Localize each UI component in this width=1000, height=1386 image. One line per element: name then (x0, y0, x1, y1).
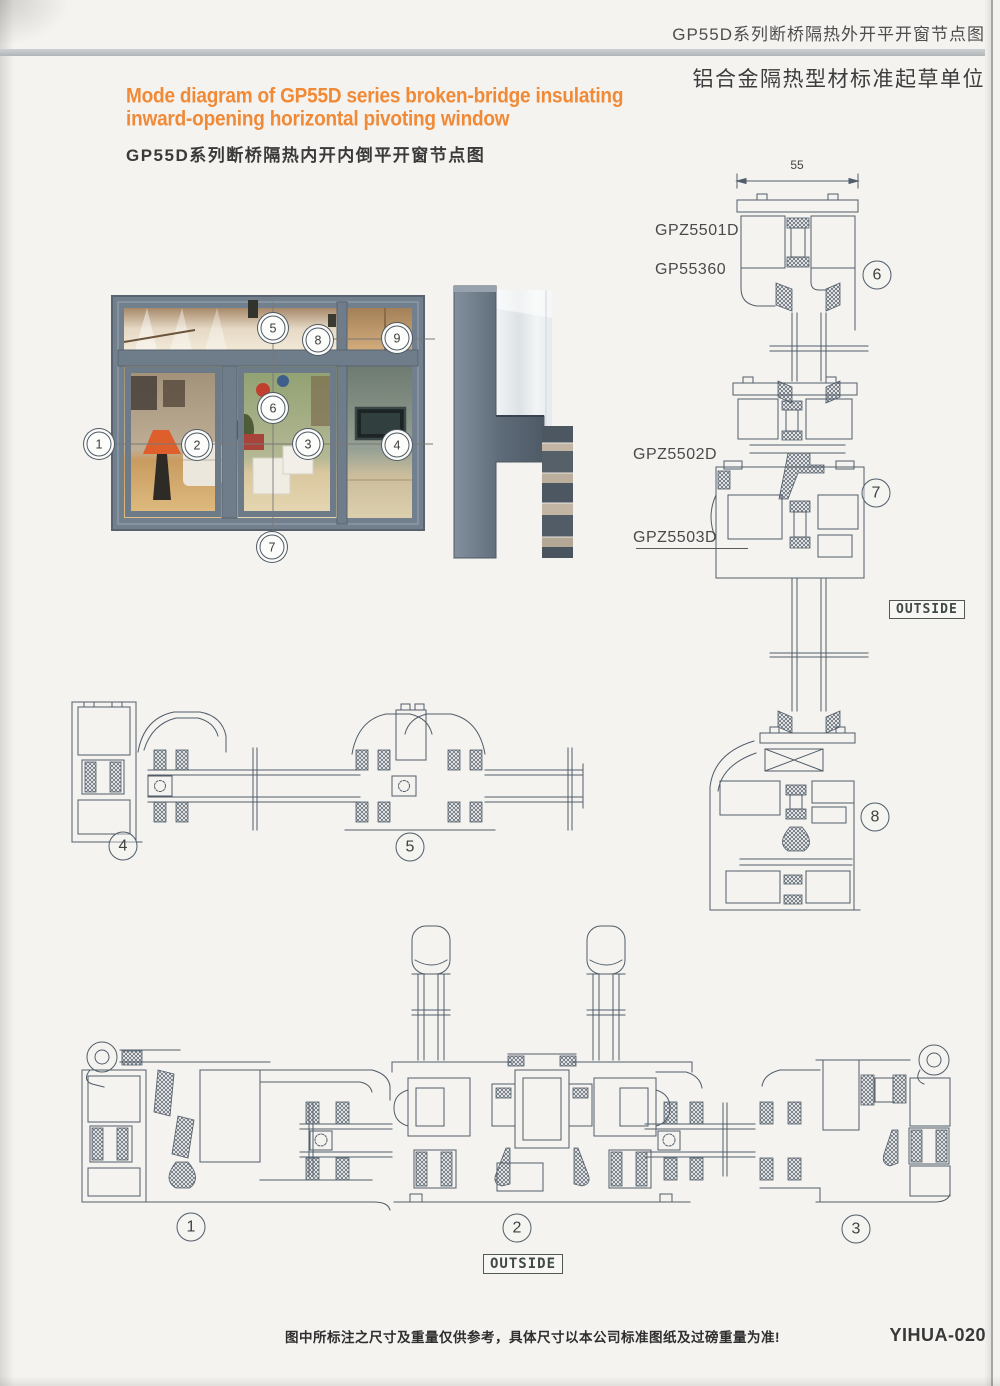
callout-8: 8 (306, 328, 331, 353)
scan-corner-shadow (0, 0, 70, 46)
label-profile-gpz5501d: GPZ5501D (655, 222, 739, 240)
callout-7: 7 (260, 535, 285, 560)
page-title: GP55D系列断桥隔热外开平开窗节点图 (672, 20, 985, 45)
callout-3: 3 (296, 432, 321, 457)
callout-1: 1 (87, 432, 112, 457)
scan-bottom-shadow (0, 1376, 1000, 1386)
english-title: Mode diagram of GP55D series broken-brid… (126, 85, 623, 131)
header-divider-bar (0, 49, 985, 56)
node-circle-8: 8 (861, 803, 890, 832)
node-circle-1: 1 (177, 1213, 206, 1242)
callout-5: 5 (261, 316, 286, 341)
catalog-page: GP55D系列断桥隔热外开平开窗节点图 铝合金隔热型材标准起草单位 Mode d… (0, 0, 1000, 1386)
label-profile-gpz5502d: GPZ5502D (633, 446, 717, 464)
callout-9: 9 (385, 326, 410, 351)
node-circle-4: 4 (109, 832, 138, 861)
corner-profile-render (438, 276, 573, 574)
label-profile-gp55360: GP55360 (655, 261, 726, 279)
node-circle-5: 5 (396, 833, 425, 862)
outside-label-right: OUTSIDE (889, 600, 965, 619)
label-profile-gpz5503d: GPZ5503D (633, 529, 717, 547)
horizontal-section-drawing (60, 690, 680, 875)
footer-disclaimer: 图中所标注之尺寸及重量仅供参考，具体尺寸以本公司标准图纸及过磅重量为准! (285, 1326, 780, 1346)
outside-label-bottom: OUTSIDE (483, 1254, 563, 1274)
node-circle-3: 3 (842, 1215, 871, 1244)
label-leader-line (636, 548, 748, 549)
footer-page-code: YIHUA-020 (860, 1325, 986, 1346)
node-circle-7: 7 (862, 479, 891, 508)
scan-left-shadow (0, 0, 14, 1386)
callout-4: 4 (385, 433, 410, 458)
callout-6: 6 (261, 396, 286, 421)
node-circle-6: 6 (863, 261, 892, 290)
bottom-section-drawing (60, 920, 960, 1255)
english-title-line1: Mode diagram of GP55D series broken-brid… (126, 85, 623, 108)
english-title-line2: inward-opening horizontal pivoting windo… (126, 108, 623, 131)
dimension-55: 55 (782, 158, 812, 172)
org-subtitle: 铝合金隔热型材标准起草单位 (693, 63, 986, 93)
node-circle-2: 2 (503, 1214, 532, 1243)
callout-2: 2 (185, 433, 210, 458)
chinese-title: GP55D系列断桥隔热内开内倒平开窗节点图 (126, 141, 485, 166)
